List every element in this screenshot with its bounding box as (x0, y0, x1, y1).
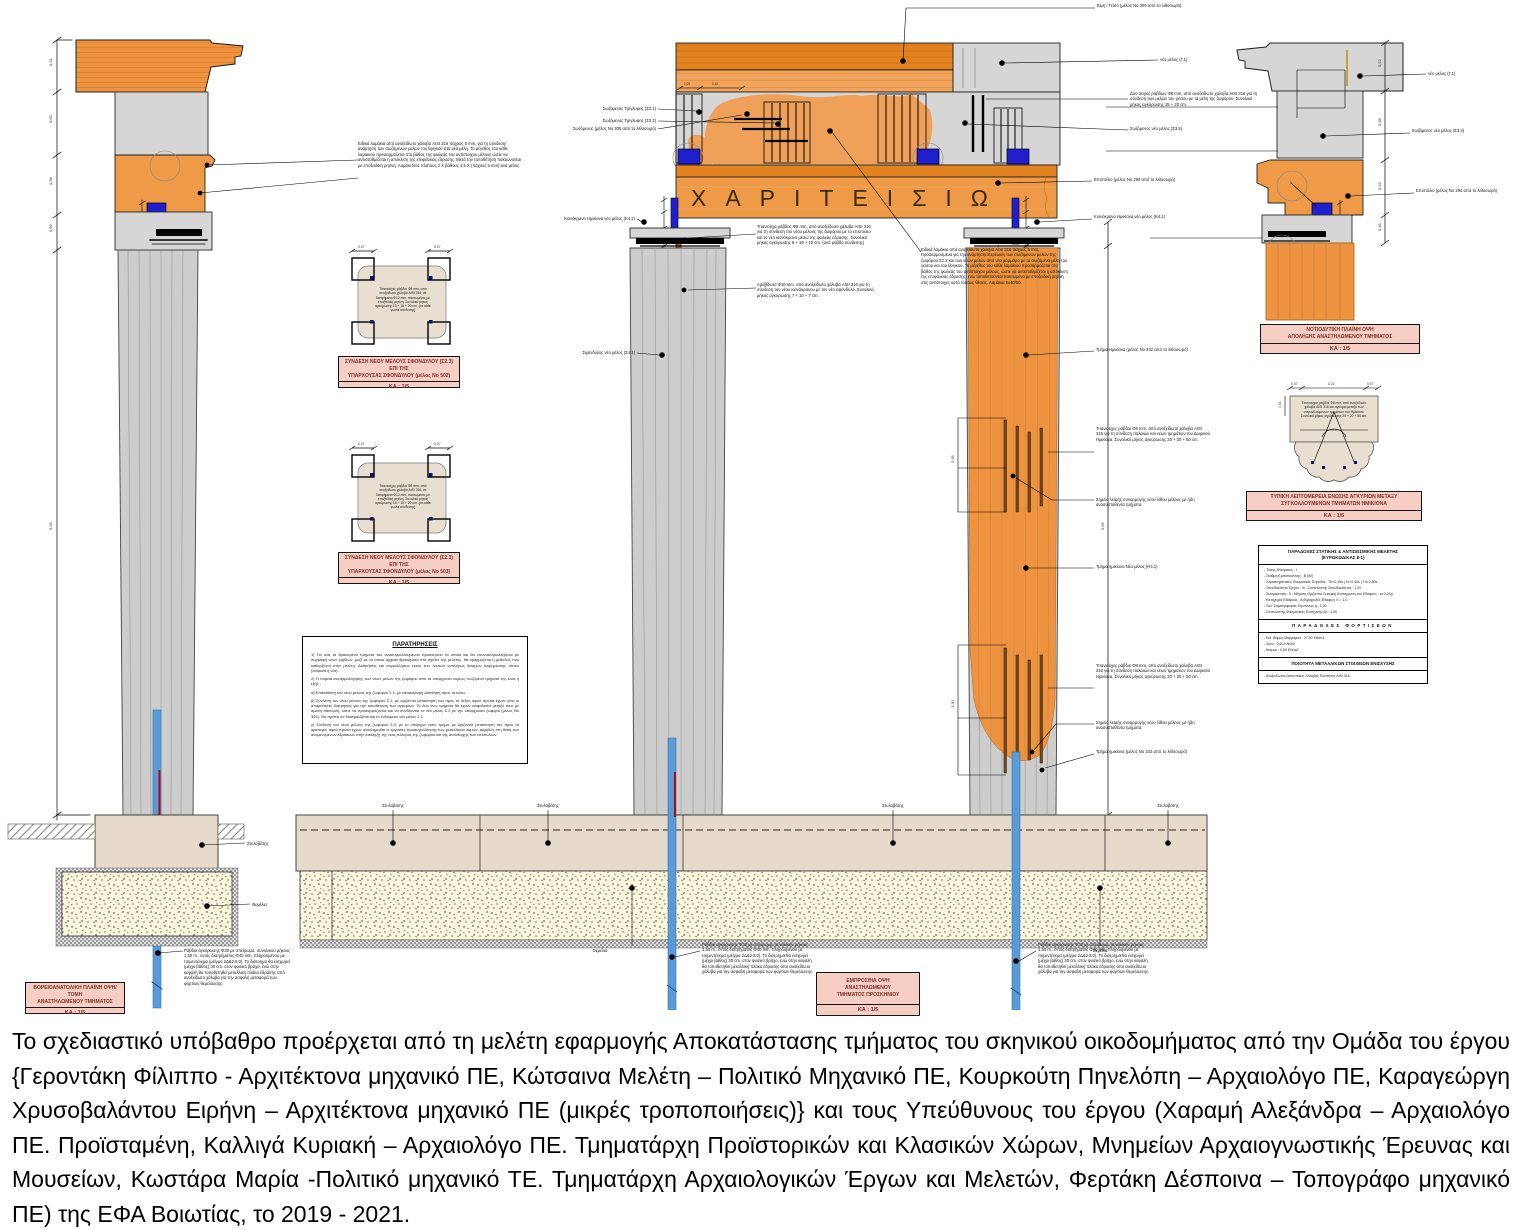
callout-foundation-leftview: Θεμέλια (252, 902, 267, 907)
callout-rod-b: Αράβδωτο Φ10 mm, από ανοξείδωτο χάλυβα A… (757, 282, 875, 298)
callout-foundation-center: Θεμέλια (568, 948, 632, 953)
detail-c-note: Τιτανιούχες ράβδοι Φ8 mm, από ανοξείδωτο… (1299, 401, 1369, 418)
half-column-scallop (1294, 442, 1373, 482)
view-label-text: ΕΜΠΡΟΣΘΙΑ ΟΨΗ (820, 978, 916, 985)
dim-label: 0,51 (48, 57, 53, 66)
callout-anchor-note-left: Ράβδοι αγκύρωσης Φ30 με σπείρωμα, συνολι… (184, 948, 292, 986)
callout-rod-a: Τιτανιούχα ράβδος Φ8 mm, από ανοξείδωτο … (757, 224, 875, 246)
view-label-scale: ΚΑ : 1/5 (1247, 511, 1421, 521)
view-label-front: ΕΜΠΡΟΣΘΙΑ ΟΨΗ ΑΝΑΣΤΗΛΩΜΕΝΟΥ ΤΜΗΜΑΤΟΣ ΠΡΟ… (816, 972, 920, 1016)
spec-loads-title: ΠΑΡΑΔΟΧΕΣ ΦΟΡΤΙΣΕΩΝ (1259, 620, 1427, 633)
foundation (300, 871, 1207, 940)
dim-label: 0,54 (1377, 181, 1382, 190)
sw-capital-band (1262, 215, 1352, 243)
spec-item: - Συντελεστής Φασματικής Ενίσχυσης βο : … (1264, 610, 1422, 616)
callout-lamella-left: Ειδικά λαμάκια από ανοξείδωτο χάλυβα AIS… (358, 141, 523, 168)
callout-hemi-343: Τμήμα ημικίονα (μέλος Νο 343 από το λιθο… (1096, 749, 1191, 754)
notes-p1: 1) Για όλα τα θραυσμένα τμήματα του ανασ… (311, 652, 519, 673)
drawing-sheet: 0,51 0,63 0,58 0,60 5,65 (0, 0, 1519, 1230)
dim-label: 0,58 (48, 176, 53, 185)
callout-capital-left: Κιονόκρανο Ημικίονα νέο μέλος (Κ4.2) (543, 216, 635, 221)
callout-titanium-rods-1: Τιτανιούχες ράβδοι Φ8 mm, από ανοξείδωτο… (1096, 426, 1210, 442)
callout-titanium-rods-2: Τιτανιούχες ράβδοι Φ8 mm, από ανοξείδωτο… (1096, 663, 1210, 679)
notes-p2a: α) Επανάθεση του νέου μέλους της ζωφόρου… (311, 690, 519, 695)
ground-hatch-right (218, 824, 244, 839)
detail-b-note: Τιτανιούχες ράβδοι Φ8 mm, από ανοξείδωτο… (371, 484, 435, 510)
dim-label: 0,07 (434, 442, 441, 446)
callout-geison-top: Σίμη / Γείσο (μέλος Νο 300 από το λιθοσω… (1097, 3, 1247, 8)
notes-box: ΠΑΡΑΤΗΡΗΣΕΙΣ 1) Για όλα τα θραυσμένα τμή… (302, 636, 528, 764)
view-label-text: ΥΠΑΡΧΟΥΣΑΣ ΣΦΟΝΔΥΛΟΥ (μέλος Νο 503) (342, 569, 456, 576)
dim-label: 0,60 (48, 223, 53, 232)
view-label-text: ΥΠΑΡΧΟΥΣΑΣ ΣΦΟΝΔΥΛΟΥ (μέλος Νο 502) (342, 373, 456, 380)
sw-epistyle (1257, 160, 1363, 215)
source-attribution-text: Το σχεδιαστικό υπόβαθρο προέρχεται από τ… (12, 1024, 1510, 1230)
sw-column-shaft (1266, 243, 1354, 320)
view-label-sw: ΝΟΤΙΟΔΥΤΙΚΗ ΠΛΑΪΝΗ ΟΨΗ ΑΠΟΛΗΞΗΣ ΑΝΑΣΤΗΛΩ… (1260, 324, 1420, 354)
dim-label: 5,65 (48, 521, 53, 530)
spec-title-line2: (ΕΥΡΩΚΩΔΙΚΑΣ 8-1) (1261, 555, 1425, 561)
callout-foundation-right: Θεμέλια (1068, 948, 1132, 953)
left-view: 0,51 0,63 0,58 0,60 5,65 (8, 37, 244, 1008)
dim-label: 0,52 (1377, 58, 1382, 67)
dim-label: 0,20 (1328, 382, 1335, 386)
view-label-detail-b: ΣΥΝΔΕΣΗ ΝΕΟΥ ΜΕΛΟΥΣ ΣΦΟΝΔΥΛΟΥ (Σ2.3) ΕΠΙ… (338, 552, 460, 584)
notes-p2b: β) Σύνδεση του νέου μέλους της ζωφόρου Σ… (311, 698, 519, 719)
view-label-text: ΤΜΗΜΑΤΟΣ ΠΡΟΣΚΗΝΙΟΥ (820, 992, 916, 999)
left-frieze-block (115, 92, 208, 155)
right-capital-front (964, 228, 1064, 246)
right-column-new-marble (968, 248, 1058, 761)
left-dimension-line (53, 37, 90, 820)
callout-anchor-note-center: Ράβδοι αγκύρωσης Φ30 με σπείρωμα, συνολι… (702, 942, 814, 975)
spec-load-items: - Ειδ. Βάρος Μαρμάρου : 27,00 KN/m3 - Χι… (1259, 633, 1427, 658)
view-label-text: ΣΥΝΔΕΣΗ ΝΕΟΥ ΜΕΛΟΥΣ ΣΦΟΝΔΥΛΟΥ (Σ2.3) ΕΠΙ… (342, 555, 456, 569)
taenia (676, 165, 1057, 177)
callout-drum-left: Σφόνδυλος νέο μέλος (Σ4.1) (543, 350, 635, 355)
detail-plan-c: 0,07 0,20 0,07 0,51 (1278, 382, 1381, 482)
spec-seismic-items: - Τύπος Φάσματος : Ι - Στάθμη Εμπιστοσύν… (1259, 565, 1427, 620)
callout-epistyle-sw: Επιστύλιο (μέλος Νο 294 από το λιθοσωρό) (1416, 188, 1501, 193)
view-label-text: ΑΝΑΣΤΗΛΩΜΕΝΟΥ (820, 985, 916, 992)
callout-stylobate-3: Στυλοβάτης (858, 803, 928, 808)
dim-label: 0,51 (1278, 401, 1282, 408)
dim-label: 0,07 (1291, 382, 1298, 386)
detail-a-note: Τιτανιούχες ράβδοι Φ8 mm, από ανοξείδωτο… (371, 287, 435, 313)
left-geison (76, 40, 243, 92)
callout-two-rows: Δύο σειρές ράβδων Φ8 mm, από ανοξείδωτο … (1130, 91, 1263, 107)
center-anchor-rod-2 (1012, 752, 1020, 1010)
view-label-scale: ΚΑ : 1/5 (817, 1005, 919, 1015)
view-label-text: ΣΥΓΚΟΛΛΟΥΜΕΝΩΝ ΤΜΗΜΑΤΩΝ ΗΜΙΚΙΟΝΑ (1250, 501, 1418, 508)
dim-label: 0,95 (950, 454, 955, 463)
dim-label: 5,65 (1100, 521, 1105, 530)
callout-stylobate-1: Στυλοβάτης (358, 803, 428, 808)
view-label-detail-a: ΣΥΝΔΕΣΗ ΝΕΟΥ ΜΕΛΟΥΣ ΣΦΟΝΔΥΛΟΥ (Σ2.3) ΕΠΙ… (338, 356, 460, 388)
dim-label: 0,45 (1377, 222, 1382, 231)
notes-title: ΠΑΡΑΤΗΡΗΣΕΙΣ (311, 642, 519, 648)
callout-member-305: Σωζόμενος (μέλος Νο 305 από το λιθοσωρό) (520, 126, 656, 131)
view-label-detail-c: ΤΥΠΙΚΗ ΛΕΠΤΟΜΕΡΕΙΑ ΕΝΩΣΗΣ ΑΓΚΥΡΙΩΝ ΜΕΤΑΞ… (1246, 491, 1422, 521)
view-label-scale: ΚΑ : 1/5 (26, 1008, 124, 1018)
view-label-text: ΑΝΑΣΤΗΛΩΜΕΝΟΥ ΤΜΗΜΑΤΟΣ (29, 999, 121, 1006)
dim-label: 0,63 (48, 114, 53, 123)
view-label-text: ΤΥΠΙΚΗ ΛΕΠΤΟΜΕΡΕΙΑ ΕΝΩΣΗΣ ΑΓΚΥΡΙΩΝ ΜΕΤΑΞ… (1250, 494, 1418, 501)
callout-stylobate-2: Στυλοβάτης (513, 803, 583, 808)
dim-label: 0,05 (684, 82, 690, 86)
callout-anchor-note-right: Ράβδοι αγκύρωσης Φ30 με σπείρωμα, συνολι… (1038, 942, 1150, 975)
callout-hemi-342: Τμήμα Ημικίονα (μέλος Νο 342 από το λιθο… (1096, 347, 1196, 352)
callout-seam-1: Σημείο λειψής συναρμογής νέου λίθου μέλο… (1096, 497, 1210, 508)
sw-frieze-block (1277, 91, 1363, 158)
callout-epistyle: Επιστύλιο (μέλος Νο 294 από το λιθοσωρό) (1094, 177, 1224, 182)
callout-new-geison-sw: νέο μέλος (Γ.1) (1428, 71, 1498, 76)
frieze-orange-patch (705, 94, 933, 164)
callout-stylobate-leftview: Στυλοβάτης (247, 841, 269, 846)
callout-triglyph-1: Σωζόμενος Τρίγλυφος (Σ3.1) (548, 106, 656, 111)
view-label-scale: ΚΑ : 1/5 (339, 578, 459, 588)
dim-label: 0,68 (1377, 117, 1382, 126)
callout-lamella-note: Ειδικά λαμάκια από ανοξείδωτο χάλυβα AIS… (921, 247, 1068, 285)
stylobate (296, 815, 1207, 871)
geison-grey-corner (953, 43, 1060, 92)
sw-view: 0,52 0,68 0,54 0,45 (1237, 40, 1403, 320)
callout-soz-s33: Σωζόμενος νέο μέλος (Σ3.3) (1412, 128, 1487, 133)
dim-label: 0,07 (358, 442, 365, 446)
ground-hatch-left (8, 824, 95, 839)
view-label-text: ΒΟΡΕΙΟΑΝΑΤΟΛΙΚΗ ΠΛΑΪΝΗ ΟΨΗ/ΤΟΜΗ (29, 985, 121, 999)
left-capital-front (630, 228, 730, 246)
spec-table: ΠΑΡΑΔΟΧΕΣ ΣΤΑΤΙΚΗΣ & ΑΝΤΙΣΕΙΣΜΙΚΗΣ ΜΕΛΕΤ… (1258, 545, 1428, 684)
dim-label: 0,07 (434, 245, 441, 249)
callout-triglyph-2: Σωζόμενος Τρίγλυφος (Σ3.3) (548, 118, 656, 123)
spec-steel-title: ΠΟΙΟΤΗΤΑ ΜΕΤΑΛΛΙΚΩΝ ΣΤΟΙΧΕΙΩΝ ΕΝΙΣΧΥΣΗΣ (1259, 658, 1427, 671)
callout-seam-2: Σημείο λειψής συναρμογής νέου λίθου μέλο… (1096, 720, 1210, 731)
inscription: ΧΑΡΙΤΕΙΣΙΩ (691, 185, 1007, 211)
dim-label: 0,15 (712, 82, 718, 86)
view-label-text: ΣΥΝΔΕΣΗ ΝΕΟΥ ΜΕΛΟΥΣ ΣΦΟΝΔΥΛΟΥ (Σ2.3) ΕΠΙ… (342, 359, 456, 373)
view-label-scale: ΚΑ : 1/5 (339, 382, 459, 392)
spec-steel-items: - Ανοξείδωτος Ωστενιτικός Χάλυβας Ποιότη… (1259, 671, 1427, 683)
geison-dark-band (676, 43, 953, 70)
dim-label: 0,07 (358, 245, 365, 249)
dim-label: 0,07 (1367, 382, 1374, 386)
view-label-text: ΑΠΟΛΗΞΗΣ ΑΝΑΣΤΗΛΩΜΕΝΟΥ ΤΜΗΜΑΤΟΣ (1264, 334, 1416, 341)
view-label-left: ΒΟΡΕΙΟΑΝΑΤΟΛΙΚΗ ΠΛΑΪΝΗ ΟΨΗ/ΤΟΜΗ ΑΝΑΣΤΗΛΩ… (25, 982, 125, 1014)
left-stylobate (95, 815, 218, 872)
notes-p2: 2) Η πορεία συναρμολόγησης των νέων μελώ… (311, 676, 519, 687)
spec-title: ΠΑΡΑΔΟΧΕΣ ΣΤΑΤΙΚΗΣ & ΑΝΤΙΣΕΙΣΜΙΚΗΣ ΜΕΛΕΤ… (1259, 546, 1427, 565)
spec-item: - Άνεμος : 0,50 KN/m2 (1264, 648, 1422, 654)
callout-triglyph-5: Σωζόμενος νέο μέλος (Σ3.5) (1130, 126, 1210, 131)
spec-item: - Ανοξείδωτος Ωστενιτικός Χάλυβας Ποιότη… (1264, 674, 1422, 680)
notes-p2c: γ) Σύνδεση του νέου μέλους της ζωφόρου Σ… (311, 722, 519, 738)
callout-new-geison: νέο μέλος (Γ.1) (1160, 57, 1240, 62)
geison-light-band (676, 70, 953, 92)
callout-hemi-new: Τμήμα ημικίονα Νέο μέλος (Η4.1) (1096, 564, 1186, 569)
view-label-scale: ΚΑ : 1/5 (1261, 344, 1419, 354)
view-label-text: ΝΟΤΙΟΔΥΤΙΚΗ ΠΛΑΪΝΗ ΟΨΗ (1264, 327, 1416, 334)
callout-stylobate-4: Στυλοβάτης (1133, 803, 1203, 808)
callout-capital-right: Κιονόκρανο Ημικίονα νέο μέλος (Κ4.1) (1094, 214, 1189, 219)
dim-label: 1,30 (950, 699, 955, 708)
